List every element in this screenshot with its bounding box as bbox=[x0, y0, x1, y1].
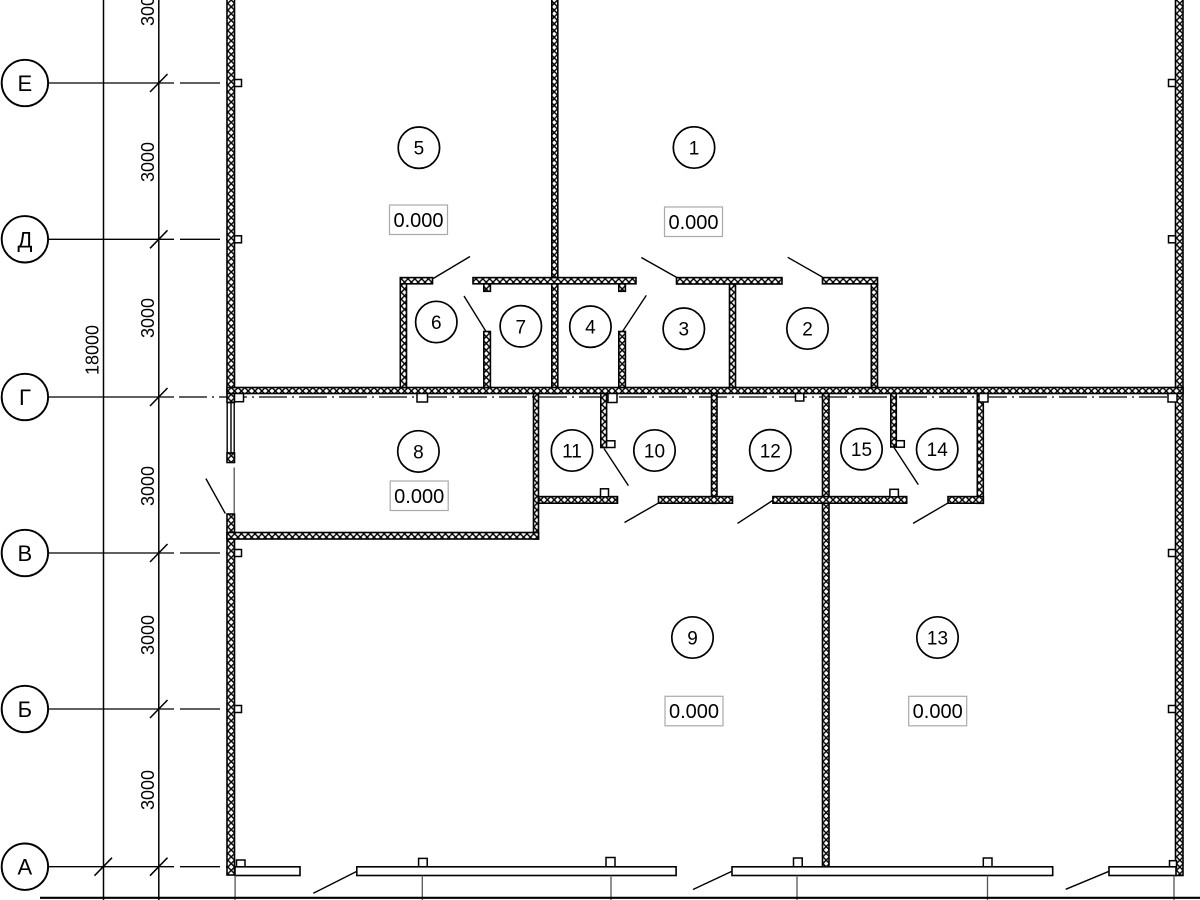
svg-text:14: 14 bbox=[927, 440, 949, 461]
svg-text:0.000: 0.000 bbox=[393, 210, 443, 232]
svg-text:0.000: 0.000 bbox=[668, 212, 718, 234]
svg-text:3000: 3000 bbox=[138, 770, 158, 810]
svg-text:0.000: 0.000 bbox=[394, 486, 444, 508]
svg-text:8: 8 bbox=[413, 442, 424, 463]
svg-text:18000: 18000 bbox=[82, 325, 102, 375]
svg-text:7: 7 bbox=[516, 317, 527, 338]
svg-text:3000: 3000 bbox=[138, 142, 158, 182]
svg-text:9: 9 bbox=[687, 629, 698, 650]
svg-text:3000: 3000 bbox=[138, 0, 158, 26]
svg-text:12: 12 bbox=[760, 441, 781, 462]
svg-text:13: 13 bbox=[927, 629, 948, 650]
svg-text:1: 1 bbox=[689, 139, 700, 160]
svg-text:5: 5 bbox=[414, 139, 425, 160]
svg-text:3000: 3000 bbox=[138, 466, 158, 506]
svg-text:10: 10 bbox=[644, 442, 665, 463]
svg-text:15: 15 bbox=[851, 440, 872, 461]
svg-text:2: 2 bbox=[802, 320, 813, 341]
svg-text:3000: 3000 bbox=[138, 615, 158, 655]
svg-text:4: 4 bbox=[585, 318, 596, 339]
svg-text:0.000: 0.000 bbox=[669, 701, 719, 723]
svg-text:11: 11 bbox=[562, 442, 582, 463]
svg-text:Е: Е bbox=[18, 71, 33, 96]
svg-text:В: В bbox=[18, 541, 33, 566]
svg-text:А: А bbox=[18, 855, 33, 880]
svg-text:0.000: 0.000 bbox=[913, 701, 963, 723]
svg-text:Г: Г bbox=[19, 385, 31, 410]
svg-text:Д: Д bbox=[17, 227, 32, 252]
svg-text:6: 6 bbox=[431, 313, 442, 334]
svg-text:3: 3 bbox=[679, 320, 690, 341]
svg-text:Б: Б bbox=[18, 697, 32, 722]
svg-text:3000: 3000 bbox=[138, 298, 158, 338]
